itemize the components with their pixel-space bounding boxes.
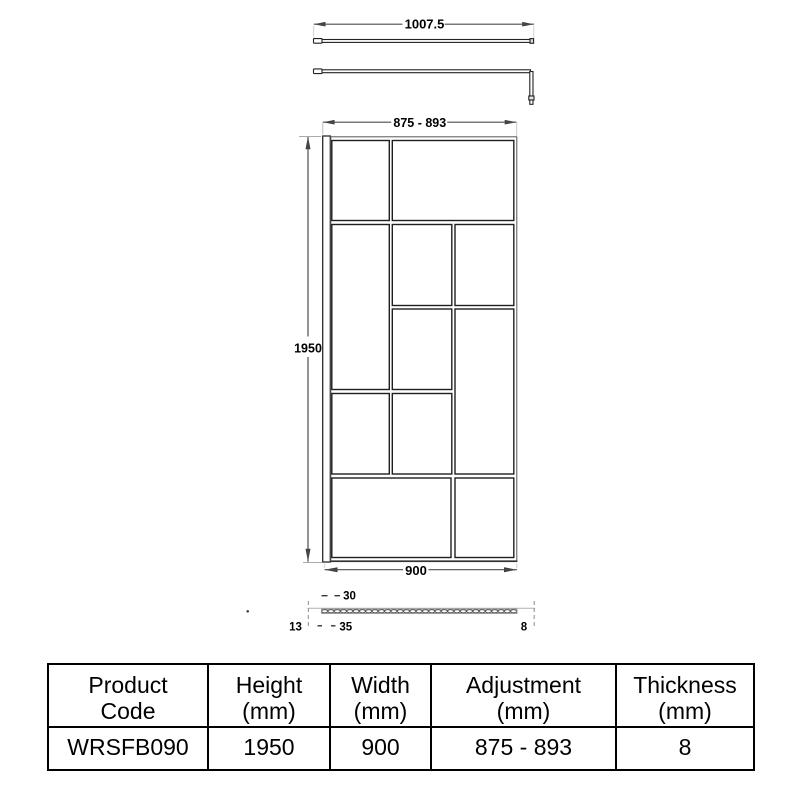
svg-text:8: 8 bbox=[521, 622, 528, 634]
svg-text:1007.5: 1007.5 bbox=[405, 17, 445, 32]
svg-text:900: 900 bbox=[405, 563, 427, 578]
svg-text:30: 30 bbox=[343, 591, 356, 603]
svg-text:35: 35 bbox=[339, 622, 352, 634]
svg-text:875 - 893: 875 - 893 bbox=[393, 116, 446, 130]
svg-text:13: 13 bbox=[289, 622, 302, 634]
svg-text:1950: 1950 bbox=[294, 342, 322, 356]
